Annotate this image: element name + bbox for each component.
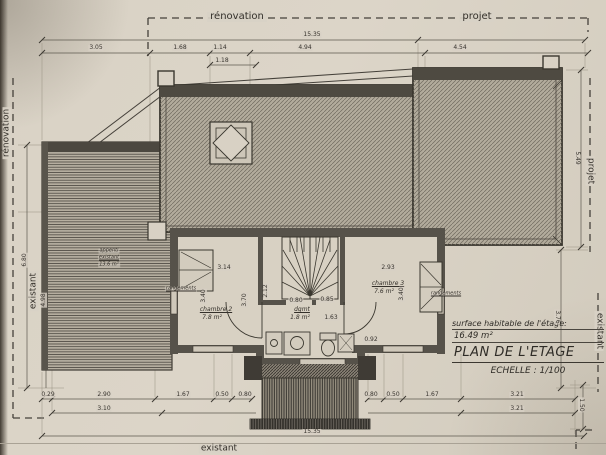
- closet-right: [420, 262, 442, 312]
- dimension-label: 3.05: [88, 45, 103, 51]
- dimension-label: 4.54: [452, 45, 467, 51]
- dimension-label: 1.67: [424, 392, 439, 398]
- label-projet-top: projet: [459, 12, 494, 22]
- plan-title: PLAN DE L'ETAGE: [452, 343, 604, 363]
- dimension-label: 1.63: [323, 315, 338, 321]
- dimension-label: 3.10: [96, 406, 111, 412]
- title-block: surface habitable de l'étage: 16.49 m² P…: [452, 319, 604, 376]
- floor-plan-page: rénovation projet rénovation existant pr…: [0, 0, 606, 455]
- dimension-label: 3.40: [399, 286, 405, 301]
- dimension-label: 4.94: [297, 45, 312, 51]
- dimension-label: 3.21: [509, 406, 524, 412]
- dimension-label: 4.98: [41, 292, 47, 307]
- roof-junction-box: [148, 222, 166, 240]
- label-existant-left: existant: [30, 271, 39, 311]
- dimension-label: 0.92: [363, 337, 378, 343]
- dimension-label: 3.40: [201, 288, 207, 303]
- label-dgmt-area: 1.8 m²: [290, 315, 310, 321]
- dimension-label: 1.67: [175, 392, 190, 398]
- chimney-right: [543, 56, 559, 69]
- velux-skylight: [210, 122, 252, 164]
- surface-value: 16.49 m²: [452, 330, 604, 343]
- dimension-label: 2.90: [96, 392, 111, 398]
- balcony: [244, 356, 376, 429]
- dimension-label: 0.80: [237, 392, 252, 398]
- surface-label: surface habitable de l'étage:: [452, 319, 604, 330]
- roof-central: [158, 71, 420, 232]
- dimension-label: 3.21: [509, 392, 524, 398]
- dimension-label: 1.18: [214, 58, 229, 64]
- plan-scale: ECHELLE : 1/100: [452, 363, 604, 376]
- dimension-label: 2.93: [380, 265, 395, 271]
- label-appenti-line2: existant: [98, 256, 120, 261]
- label-projet-right: projet: [586, 156, 595, 186]
- dimension-label: 15.35: [302, 32, 321, 38]
- dimension-label: 2.12: [263, 283, 269, 298]
- label-renovation-left: rénovation: [3, 107, 12, 159]
- dimension-label: 0.50: [214, 392, 229, 398]
- bathroom-fixtures: [266, 332, 354, 356]
- dimension-label: 3.14: [216, 265, 231, 271]
- dimension-label: 0.85: [319, 297, 334, 303]
- staircase: [282, 237, 338, 299]
- label-rangements-right: rangements: [430, 292, 462, 297]
- floor-plan-drawing: [0, 0, 606, 455]
- chimney-left: [158, 71, 174, 86]
- dimension-label: 15.35: [302, 429, 321, 435]
- label-chambre-2-area: 7.8 m²: [202, 315, 222, 321]
- dimension-label: 0.80: [363, 392, 378, 398]
- dimension-label: 6.80: [22, 252, 28, 267]
- dimension-label: 0.50: [385, 392, 400, 398]
- dimension-label: 5.49: [574, 150, 580, 165]
- dimension-label: 3.70: [242, 292, 248, 307]
- label-appenti-line1: appenti: [98, 249, 119, 254]
- roof-right: [413, 56, 562, 245]
- label-dgmt: dgmt: [294, 307, 310, 313]
- label-chambre-2: chambre 2: [200, 307, 232, 313]
- dimension-label: 0.80: [288, 298, 303, 304]
- label-rangements-left: rangements: [165, 287, 197, 292]
- label-chambre-3-area: 7.6 m²: [374, 289, 394, 295]
- dimension-label: 1.14: [212, 45, 227, 51]
- label-existant-bottom: existant: [199, 445, 239, 454]
- dimension-label: 0.29: [40, 392, 55, 398]
- label-renovation-top: rénovation: [207, 12, 267, 22]
- dimension-label: 3.76: [554, 309, 560, 324]
- toilet: [322, 340, 335, 356]
- dimension-label: 1.50: [578, 397, 584, 412]
- label-appenti-area: 13.6 m²: [98, 263, 120, 268]
- dimension-label: 1.68: [172, 45, 187, 51]
